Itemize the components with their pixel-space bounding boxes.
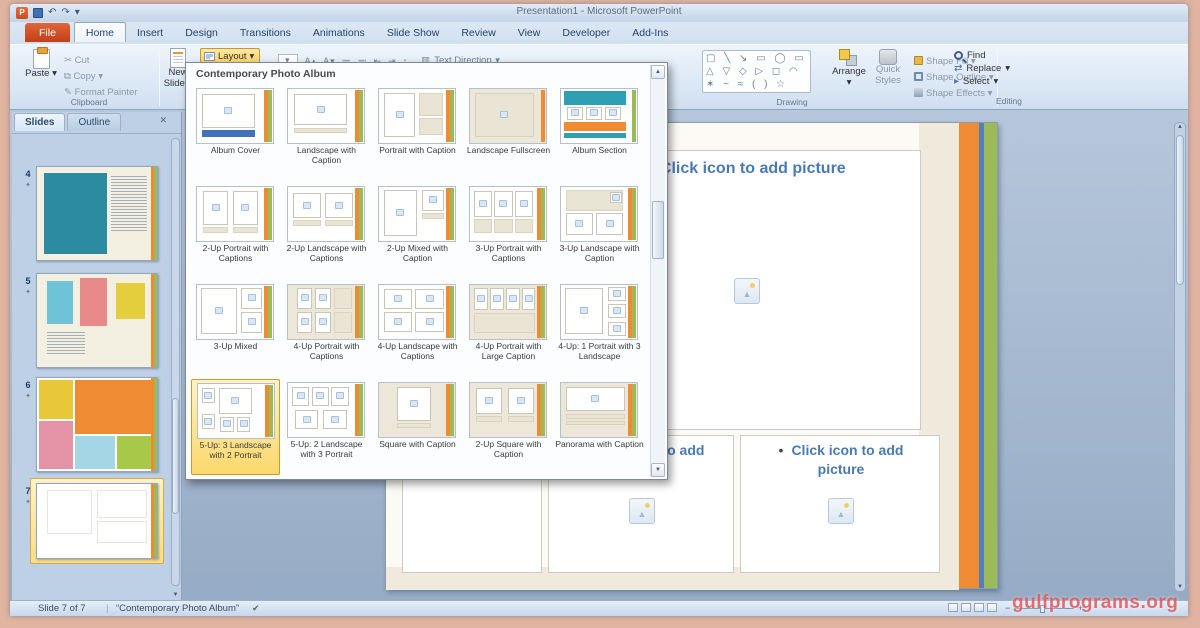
layout-option-label: 2-Up Mixed with Caption (373, 244, 462, 264)
photo-frame (494, 191, 512, 217)
tab-slide-show[interactable]: Slide Show (376, 23, 451, 42)
shapes-gallery[interactable]: ▢ ╲ ↘ ▭ ◯ ▭△ ▽ ◇ ▷ ◻ ◠✶ ~ ≈ ( ) ☆ (702, 50, 811, 93)
layout-option-label: 4-Up: 1 Portrait with 3 Landscape (555, 342, 644, 362)
layout-option[interactable]: Landscape Fullscreen (464, 85, 553, 181)
picture-icon (613, 290, 621, 297)
transition-star-icon: ✦ (21, 392, 35, 400)
caption-area (325, 220, 353, 225)
clipboard-group: Paste ▾ ✂ Cut ⧉ Copy ▾ ✎ Format Painter … (22, 47, 156, 109)
layout-option-label: 4-Up Portrait with Large Caption (464, 342, 553, 362)
photo-frame (201, 288, 237, 333)
slide-stripe-orange (959, 123, 979, 588)
photo-frame (610, 192, 622, 203)
layout-thumbnail (469, 186, 547, 242)
caption-area (294, 128, 347, 133)
photo-frame (384, 190, 417, 235)
photo-frame (384, 289, 412, 309)
empty-placeholder-outline (97, 490, 147, 518)
photo-frame (292, 387, 309, 405)
layout-thumbnail (469, 88, 547, 144)
picture-icon (396, 111, 404, 118)
caption-area (566, 421, 625, 425)
picture-icon (224, 107, 232, 114)
text-lines (111, 176, 147, 232)
picture-icon (319, 318, 327, 325)
photo-frame (608, 287, 626, 301)
photo-frame (237, 417, 251, 431)
text-lines (47, 332, 85, 354)
caption-area (293, 220, 321, 225)
layout-option[interactable]: 2-Up Square with Caption (464, 379, 553, 475)
picture-icon (204, 392, 212, 399)
picture-icon (485, 397, 493, 404)
scroll-down-icon[interactable]: ▼ (1175, 584, 1185, 590)
layout-option[interactable]: Panorama with Caption (555, 379, 644, 475)
thumbnail-art (37, 167, 157, 260)
thumbnail-art (37, 274, 157, 367)
thumbnail-stripes (537, 384, 545, 436)
photo-block (75, 436, 115, 469)
tab-developer[interactable]: Developer (551, 23, 621, 42)
color-band (202, 130, 255, 137)
caption-area (203, 227, 228, 233)
picture-icon (394, 295, 402, 302)
thumbnail-stripes (541, 90, 545, 142)
layout-option-label: Portrait with Caption (373, 146, 462, 156)
caption-area (474, 219, 492, 233)
caption-area (334, 312, 352, 333)
photo-block (75, 380, 154, 434)
picture-icon (303, 202, 311, 209)
tab-file[interactable]: File (25, 23, 70, 42)
photo-frame (325, 193, 353, 218)
find-button[interactable]: Find (954, 50, 1084, 61)
layout-thumbnail (378, 382, 456, 438)
layout-option[interactable]: 3-Up Landscape with Caption (555, 183, 644, 279)
panel-scroll-down-icon[interactable]: ▼ (171, 592, 180, 598)
layout-thumbnail (378, 186, 456, 242)
layout-option-label: 3-Up Mixed (191, 342, 280, 352)
layout-thumbnail (287, 284, 365, 340)
arrange-icon (839, 49, 859, 67)
caption-area (419, 118, 443, 135)
slide-number: 4 (21, 169, 35, 179)
photo-frame (566, 213, 593, 235)
layout-thumbnail (196, 88, 274, 144)
photo-frame (315, 288, 330, 309)
replace-button[interactable]: ⇄Replace ▾ (954, 63, 1084, 74)
layout-option[interactable]: Square with Caption (373, 379, 462, 475)
photo-frame (422, 190, 445, 211)
caption-area (334, 288, 352, 309)
layout-option[interactable]: 5-Up: 3 Landscape with 2 Portrait (191, 379, 280, 475)
layout-thumbnail (378, 284, 456, 340)
layout-thumbnail (287, 382, 365, 438)
picture-icon (606, 220, 614, 227)
slide-number: 5 (21, 276, 35, 286)
thumbnail-stripes (632, 90, 636, 142)
picture-icon (575, 220, 583, 227)
thumbnail-stripes (537, 286, 545, 338)
thumbnail-stripes (628, 286, 636, 338)
new-slide-icon (170, 48, 186, 68)
color-band (564, 122, 626, 131)
layout-thumbnail (560, 186, 638, 242)
layout-option[interactable]: Landscape with Caption (282, 85, 371, 181)
layout-option-label: 2-Up Square with Caption (464, 440, 553, 460)
layout-option[interactable]: Album Section (555, 85, 644, 181)
gallery-scrollbar[interactable]: ▲ ▼ (650, 65, 665, 477)
picture-icon (248, 318, 256, 325)
photo-block (80, 278, 106, 326)
insert-picture-icon[interactable] (734, 278, 760, 304)
editing-group-label: Editing (954, 96, 1064, 106)
photo-frame (608, 322, 626, 336)
empty-placeholder-outline (97, 521, 147, 543)
picture-icon (240, 420, 248, 427)
tab-animations[interactable]: Animations (302, 23, 376, 42)
layout-thumbnail (378, 88, 456, 144)
transition-star-icon: ✦ (21, 181, 35, 189)
picture-icon (591, 395, 599, 402)
layout-option-label: 3-Up Landscape with Caption (555, 244, 644, 264)
gallery-scroll-up-icon[interactable]: ▲ (651, 65, 665, 79)
thumbnail-stripes (446, 90, 454, 142)
photo-frame (220, 417, 234, 431)
picture-icon (301, 294, 309, 301)
slide-number: 6 (21, 380, 35, 390)
layout-option[interactable]: 5-Up: 2 Landscape with 3 Portrait (282, 379, 371, 475)
photo-frame (312, 387, 329, 405)
layout-thumbnail (560, 382, 638, 438)
thumbnail-stripes (446, 384, 454, 436)
slides-panel: SlidesOutline ✕ 4✦5✦6✦7✦ ▼ (12, 112, 182, 600)
layout-option[interactable]: 3-Up Portrait with Captions (464, 183, 553, 279)
layout-option[interactable]: 4-Up: 1 Portrait with 3 Landscape (555, 281, 644, 377)
photo-frame (586, 107, 602, 120)
picture-icon (613, 325, 621, 332)
picture-icon (493, 295, 501, 302)
quick-styles-button[interactable]: Quick Styles (870, 49, 906, 87)
picture-icon (204, 418, 212, 425)
picture-icon (580, 307, 588, 314)
photo-frame (515, 191, 533, 217)
layout-thumbnail (196, 186, 274, 242)
drawing-group-label: Drawing (682, 97, 902, 107)
tab-home[interactable]: Home (74, 22, 126, 42)
thumbnail-stripes (446, 286, 454, 338)
thumbnail-stripes (355, 188, 363, 240)
slide-thumbnail-5[interactable]: 5✦ (36, 273, 158, 368)
layout-gallery-dropdown: Contemporary Photo Album Album CoverLand… (185, 62, 668, 480)
empty-placeholder-outline (47, 490, 93, 534)
paste-button[interactable]: Paste ▾ (24, 49, 58, 80)
tab-insert[interactable]: Insert (126, 23, 174, 42)
scroll-up-icon[interactable]: ▲ (1175, 124, 1185, 130)
caption-area (422, 213, 445, 219)
photo-frame (608, 304, 626, 318)
thumb-stripe-green (154, 378, 157, 471)
photo-block (39, 380, 73, 419)
zoom-out-icon[interactable]: − (1005, 603, 1010, 613)
picture-icon (231, 397, 239, 404)
photo-frame (293, 193, 321, 218)
thumb-stripe-green (154, 274, 157, 367)
transition-star-icon: ✦ (21, 288, 35, 296)
layout-option[interactable]: 4-Up Portrait with Large Caption (464, 281, 553, 377)
picture-icon (241, 204, 249, 211)
caption-area (397, 423, 430, 428)
caption-area (508, 416, 534, 421)
slide-thumbnail-4[interactable]: 4✦ (36, 166, 158, 261)
panel-thumbnails: 4✦5✦6✦7✦ (12, 134, 181, 600)
photo-frame (384, 312, 412, 332)
picture-icon (517, 397, 525, 404)
caption-area (474, 313, 536, 332)
photo-frame (297, 288, 312, 309)
photo-frame (567, 107, 583, 120)
photo-frame (203, 191, 228, 224)
arrange-button[interactable]: Arrange▾ (832, 49, 866, 89)
color-band (564, 91, 626, 105)
layout-option[interactable]: 2-Up Landscape with Captions (282, 183, 371, 279)
caption-area (515, 219, 533, 233)
layout-option-label: 5-Up: 2 Landscape with 3 Portrait (282, 440, 371, 460)
photo-block (44, 173, 106, 255)
layout-option[interactable]: 2-Up Portrait with Captions (191, 183, 280, 279)
picture-icon (571, 109, 579, 116)
photo-frame (474, 288, 488, 310)
photo-block (39, 421, 73, 469)
caption-area (419, 93, 443, 116)
insert-picture-icon[interactable] (828, 498, 854, 524)
layout-option-label: Landscape with Caption (282, 146, 371, 166)
clipboard-group-label: Clipboard (22, 97, 156, 107)
photo-frame (202, 94, 255, 127)
picture-icon (426, 295, 434, 302)
caption-area (566, 414, 625, 418)
photo-frame (565, 288, 603, 333)
photo-frame (475, 93, 534, 136)
picture-icon (396, 209, 404, 216)
picture-placeholder-bottom-right[interactable]: •Click icon to add picture (740, 435, 940, 573)
panel-scrollbar[interactable] (171, 138, 180, 586)
layout-option-label: Album Cover (191, 146, 280, 156)
picture-icon (590, 109, 598, 116)
picture-icon (477, 295, 485, 302)
insert-picture-icon[interactable] (629, 498, 655, 524)
caption-area (233, 227, 258, 233)
layout-thumbnail (560, 88, 638, 144)
slide-indicator: Slide 7 of 7 (38, 603, 86, 614)
picture-icon (336, 392, 344, 399)
layout-option-label: Panorama with Caption (555, 440, 644, 450)
layout-option-label: Landscape Fullscreen (464, 146, 553, 156)
ribbon-tabs: FileHomeInsertDesignTransitionsAnimation… (10, 22, 1188, 44)
photo-frame (605, 107, 621, 120)
thumbnail-stripes (355, 384, 363, 436)
layout-option-label: 3-Up Portrait with Captions (464, 244, 553, 264)
thumbnail-stripes (264, 90, 272, 142)
picture-icon (317, 106, 325, 113)
caption-area (476, 416, 502, 421)
thumbnail-stripes (537, 188, 545, 240)
photo-frame (506, 288, 520, 310)
layout-option[interactable]: 4-Up Portrait with Captions (282, 281, 371, 377)
thumbnail-art (37, 378, 157, 471)
picture-icon (319, 294, 327, 301)
caption-area (494, 219, 512, 233)
tab-add-ins[interactable]: Add-Ins (621, 23, 679, 42)
picture-icon (215, 307, 223, 314)
photo-block (47, 281, 73, 324)
layout-icon (204, 52, 215, 61)
view-buttons[interactable] (948, 603, 997, 612)
photo-frame (315, 312, 330, 333)
picture-icon (612, 194, 620, 201)
gallery-scrollbar-thumb[interactable] (652, 201, 664, 259)
slide-thumbnail-6[interactable]: 6✦ (36, 377, 158, 472)
canvas-scrollbar[interactable]: ▲ ▼ (1174, 122, 1186, 592)
photo-frame (233, 191, 258, 224)
color-band (564, 133, 626, 137)
scrollbar-thumb[interactable] (1176, 135, 1184, 285)
picture-icon (248, 294, 256, 301)
photo-frame (415, 312, 443, 332)
layout-thumbnail (197, 383, 275, 439)
tab-transitions[interactable]: Transitions (229, 23, 302, 42)
shape-effects-icon (914, 88, 923, 97)
photo-frame (384, 93, 416, 136)
picture-icon (509, 295, 517, 302)
photo-frame (295, 410, 319, 429)
picture-icon (410, 400, 418, 407)
window-title: Presentation1 - Microsoft PowerPoint (10, 6, 1188, 17)
layout-thumbnail (287, 186, 365, 242)
layout-thumbnail (560, 284, 638, 340)
photo-frame (596, 213, 623, 235)
paste-icon (33, 49, 50, 69)
layout-option[interactable]: 3-Up Mixed (191, 281, 280, 377)
picture-icon (426, 318, 434, 325)
photo-frame (294, 94, 347, 124)
picture-icon (609, 109, 617, 116)
photo-frame (397, 387, 430, 420)
picture-icon (479, 200, 487, 207)
layout-option-label: 2-Up Portrait with Captions (191, 244, 280, 264)
panel-tab-outline[interactable]: Outline (67, 113, 121, 131)
tab-review[interactable]: Review (450, 23, 506, 42)
picture-icon (212, 204, 220, 211)
spellcheck-icon[interactable]: ✔ (252, 603, 260, 614)
thumbnail-art (37, 484, 157, 558)
picture-icon (303, 416, 311, 423)
photo-frame (219, 388, 252, 414)
photo-frame (241, 312, 262, 333)
select-icon: ▸ (954, 76, 959, 87)
photo-frame (202, 388, 215, 403)
tab-view[interactable]: View (507, 23, 552, 42)
picture-icon (394, 318, 402, 325)
select-button[interactable]: ▸Select ▾ (954, 76, 1084, 87)
photo-frame (323, 410, 347, 429)
picture-icon (613, 307, 621, 314)
photo-frame (566, 387, 625, 411)
panel-tab-strip: SlidesOutline ✕ (12, 112, 181, 134)
layout-option-label: Square with Caption (373, 440, 462, 450)
thumbnail-stripes (628, 384, 636, 436)
layout-thumbnail (287, 88, 365, 144)
quick-styles-icon (879, 49, 897, 65)
thumb-stripe-green (154, 484, 157, 558)
picture-icon (500, 111, 508, 118)
layout-thumbnail (469, 382, 547, 438)
photo-frame (241, 288, 262, 309)
drawing-group: ▢ ╲ ↘ ▭ ◯ ▭△ ▽ ◇ ▷ ◻ ◠✶ ~ ≈ ( ) ☆ Arrang… (682, 47, 928, 109)
picture-icon (429, 196, 437, 203)
layout-option-label: Album Section (555, 146, 644, 156)
picture-icon (335, 202, 343, 209)
picture-icon (331, 416, 339, 423)
replace-icon: ⇄ (954, 63, 962, 74)
panel-close-icon[interactable]: ✕ (159, 115, 167, 126)
photo-block (116, 283, 145, 318)
picture-icon (499, 200, 507, 207)
find-icon (954, 51, 963, 60)
thumbnail-stripes (446, 188, 454, 240)
layout-thumbnail (196, 284, 274, 340)
picture-icon (520, 200, 528, 207)
layout-option[interactable]: Portrait with Caption (373, 85, 462, 181)
layout-option-label: 4-Up Portrait with Captions (282, 342, 371, 362)
photo-frame (415, 289, 443, 309)
thumb-stripe-green (154, 167, 157, 260)
layout-option[interactable]: 4-Up Landscape with Captions (373, 281, 462, 377)
slide-stripe-green (984, 123, 997, 588)
picture-icon (223, 420, 231, 427)
photo-frame (474, 191, 492, 217)
placeholder-prompt: •Click icon to add picture (756, 441, 926, 479)
photo-frame (476, 388, 502, 414)
tab-design[interactable]: Design (174, 23, 229, 42)
thumbnail-stripes (355, 286, 363, 338)
photo-block (117, 436, 154, 469)
photo-frame (522, 288, 536, 310)
photo-frame (297, 312, 312, 333)
shape-outline-icon (914, 72, 923, 81)
picture-icon (297, 392, 305, 399)
thumbnail-stripes (264, 286, 272, 338)
watermark: gulfprograms.org (1012, 592, 1178, 614)
thumbnail-stripes (355, 90, 363, 142)
picture-icon (525, 295, 533, 302)
editing-group: Find ⇄Replace ▾ ▸Select ▾ Editing (954, 48, 1084, 108)
gallery-title: Contemporary Photo Album (196, 68, 336, 80)
gallery-scroll-down-icon[interactable]: ▼ (651, 463, 665, 477)
screenshot-frame: P ↶ ↷ ▾ Presentation1 - Microsoft PowerP… (0, 0, 1200, 628)
title-bar: P ↶ ↷ ▾ Presentation1 - Microsoft PowerP… (10, 4, 1188, 22)
photo-frame (490, 288, 504, 310)
layout-option[interactable]: Album Cover (191, 85, 280, 181)
picture-icon (316, 392, 324, 399)
layout-option-label: 2-Up Landscape with Captions (282, 244, 371, 264)
slide-thumbnail-7[interactable]: 7✦ (36, 483, 158, 559)
slide-number: 7 (21, 486, 35, 496)
theme-name: “Contemporary Photo Album” (116, 603, 239, 614)
layout-option[interactable]: 2-Up Mixed with Caption (373, 183, 462, 279)
transition-star-icon: ✦ (21, 498, 35, 506)
panel-tab-slides[interactable]: Slides (14, 113, 65, 131)
